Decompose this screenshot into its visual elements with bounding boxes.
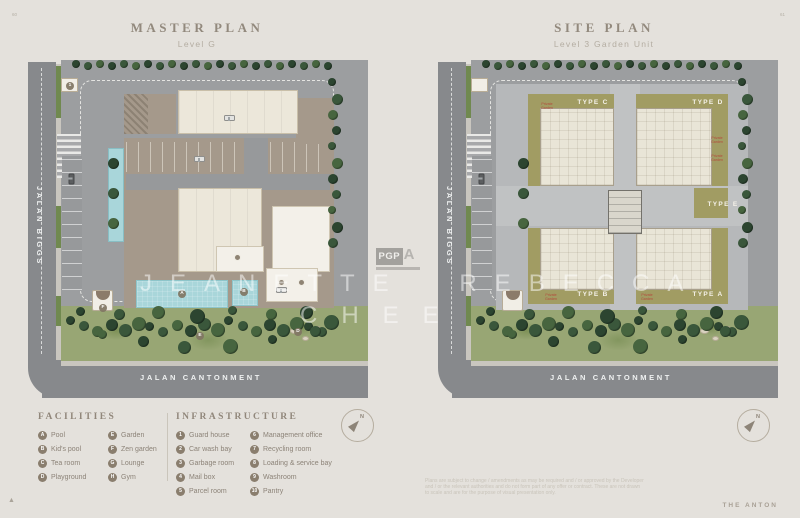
- label-private-garden: Private Garden: [708, 136, 726, 144]
- unit-type-d-floorplan: [636, 108, 712, 186]
- street-label-jalan-biggs: JALAN BIGGS: [445, 186, 454, 346]
- legend-label: Gym: [121, 474, 136, 481]
- hedge: [56, 66, 61, 118]
- hedge: [56, 206, 61, 248]
- master-plan-map: 1 A B D E F JALAN BIGGS JALAN CANTONMENT: [28, 58, 368, 398]
- street-label-jalan-cantonment: JALAN CANTONMENT: [486, 373, 736, 382]
- legend-label: Lounge: [121, 460, 144, 467]
- legend-badge: D: [38, 473, 47, 482]
- legend-badge: 1: [176, 431, 185, 440]
- parking-stalls: [126, 142, 330, 172]
- legend-item: 5Parcel room: [176, 483, 227, 501]
- page-number-left: 60: [12, 12, 17, 17]
- label-private-garden: Private Garden: [538, 102, 556, 110]
- compass-icon: N: [341, 409, 374, 442]
- legend-badge: F: [108, 445, 117, 454]
- legend-badge: 10: [250, 487, 259, 496]
- legend-badge: 6: [250, 431, 259, 440]
- legend-label: Car wash bay: [189, 446, 232, 453]
- label-type-e: TYPE E: [700, 201, 746, 208]
- marker-zen-garden: F: [99, 304, 107, 312]
- water-feature: [108, 148, 124, 242]
- pool-deck: [266, 268, 318, 302]
- compass-north-label: N: [360, 414, 364, 420]
- disclaimer: Plans are subject to change / amendments…: [425, 478, 644, 497]
- curb: [61, 361, 368, 366]
- corner-logo-mark: ▲: [8, 497, 15, 504]
- street-label-jalan-biggs: JALAN BIGGS: [35, 186, 44, 346]
- facilities-title: FACILITIES: [38, 412, 116, 422]
- compass-north-label: N: [756, 414, 760, 420]
- disclaimer-line: to scale and are for the purpose of visu…: [425, 490, 644, 496]
- legend-badge: C: [38, 459, 47, 468]
- page-number-right: 61: [780, 12, 785, 17]
- site-plan-header: SITE PLAN Level 3 Garden Unit: [499, 20, 709, 49]
- pgpa-logo-caption: [376, 267, 420, 270]
- planter: [278, 279, 285, 286]
- legend-label: Garbage room: [189, 460, 234, 467]
- legend-badge: 9: [250, 473, 259, 482]
- master-plan-header: MASTER PLAN Level G: [92, 20, 302, 49]
- pgpa-logo-text: PGP: [376, 248, 403, 265]
- master-plan-subtitle: Level G: [92, 39, 302, 49]
- label-type-b: TYPE B: [568, 291, 618, 298]
- road-jalan-cantonment: [452, 366, 778, 398]
- master-plan-title: MASTER PLAN: [92, 20, 302, 36]
- building-block: [178, 90, 298, 134]
- legend-badge: 5: [176, 487, 185, 496]
- playground-rock: [712, 336, 719, 341]
- legend-label: Parcel room: [189, 488, 227, 495]
- curb: [471, 361, 778, 366]
- legend-badge: 2: [176, 445, 185, 454]
- legend-label: Pool: [51, 432, 65, 439]
- legend-label: Pantry: [263, 488, 283, 495]
- legend-badge: 8: [250, 459, 259, 468]
- legend-label: Loading & service bay: [263, 460, 332, 467]
- legend-label: Playground: [51, 474, 86, 481]
- playground-rock: [312, 326, 322, 333]
- garden-pavilion: [502, 290, 523, 311]
- compass-needle-icon: [348, 418, 362, 432]
- marker-playground: D: [294, 328, 302, 336]
- legend-badge: G: [108, 459, 117, 468]
- car-icon: [69, 174, 75, 185]
- legend-badge: H: [108, 473, 117, 482]
- parking-deck: [296, 98, 334, 144]
- label-type-c: TYPE C: [568, 99, 618, 106]
- marker-guard-house: 1: [66, 82, 74, 90]
- label-private-garden: Private Garden: [542, 293, 560, 301]
- planter: [234, 254, 241, 261]
- label-type-a: TYPE A: [683, 291, 733, 298]
- compass-needle-icon: [744, 418, 758, 432]
- legend-item: HGym: [108, 469, 136, 487]
- playground-rock: [302, 336, 309, 341]
- legend-label: Management office: [263, 432, 322, 439]
- roof-block: [272, 206, 330, 272]
- site-plan-title: SITE PLAN: [499, 20, 709, 36]
- guard-house: [471, 78, 488, 92]
- unit-type-b-floorplan: [540, 228, 614, 290]
- ramp: [124, 94, 148, 134]
- legend-badge: B: [38, 445, 47, 454]
- street-label-jalan-cantonment: JALAN CANTONMENT: [76, 373, 326, 382]
- label-private-garden: Private Garden: [638, 293, 656, 301]
- site-plan-subtitle: Level 3 Garden Unit: [499, 39, 709, 49]
- legend-label: Mail box: [189, 474, 215, 481]
- legend-label: Recycling room: [263, 446, 311, 453]
- car-icon: [479, 174, 485, 185]
- car-icon: [224, 115, 235, 121]
- compass-icon: N: [737, 409, 770, 442]
- legend-badge: 4: [176, 473, 185, 482]
- legend-badge: 7: [250, 445, 259, 454]
- label-private-garden: Private Garden: [708, 154, 726, 162]
- legend-divider: [167, 413, 168, 481]
- infrastructure-title: INFRASTRUCTURE: [176, 412, 298, 422]
- pgpa-logo: PGPA: [376, 246, 430, 270]
- marker-pool: A: [178, 290, 186, 298]
- hedge: [466, 206, 471, 248]
- lift-core: [608, 190, 642, 234]
- legend-label: Tea room: [51, 460, 80, 467]
- legend-badge: E: [108, 431, 117, 440]
- parking-aisle: [244, 138, 268, 174]
- landscaped-garden: [61, 306, 368, 361]
- legend-label: Guard house: [189, 432, 229, 439]
- legend-badge: A: [38, 431, 47, 440]
- legend-label: Zen garden: [121, 446, 157, 453]
- hedge: [466, 66, 471, 118]
- brochure-page: 60 61 MASTER PLAN Level G SITE PLAN Leve…: [0, 0, 800, 518]
- unit-type-a-floorplan: [636, 228, 712, 290]
- car-icon: [276, 287, 287, 293]
- label-type-d: TYPE D: [683, 99, 733, 106]
- landscaped-garden: [471, 306, 778, 361]
- marker-kids-pool: B: [240, 288, 248, 296]
- playground-rock: [722, 326, 732, 333]
- car-icon: [194, 156, 205, 162]
- pgpa-logo-suffix: A: [404, 246, 415, 263]
- planter: [298, 279, 305, 286]
- playground-rock: [700, 328, 709, 334]
- legend-badge: 3: [176, 459, 185, 468]
- legend-label: Garden: [121, 432, 144, 439]
- project-brand: THE ANTON: [690, 502, 778, 509]
- legend-item: DPlayground: [38, 469, 86, 487]
- unit-type-c-floorplan: [540, 108, 614, 186]
- marker-garden: E: [196, 332, 204, 340]
- site-plan-map: TYPE C TYPE D TYPE E TYPE B TYPE A Priva…: [438, 58, 778, 398]
- legend-item: 10Pantry: [250, 483, 283, 501]
- road-jalan-cantonment: [42, 366, 368, 398]
- legend-label: Kid's pool: [51, 446, 81, 453]
- legend-label: Washroom: [263, 474, 297, 481]
